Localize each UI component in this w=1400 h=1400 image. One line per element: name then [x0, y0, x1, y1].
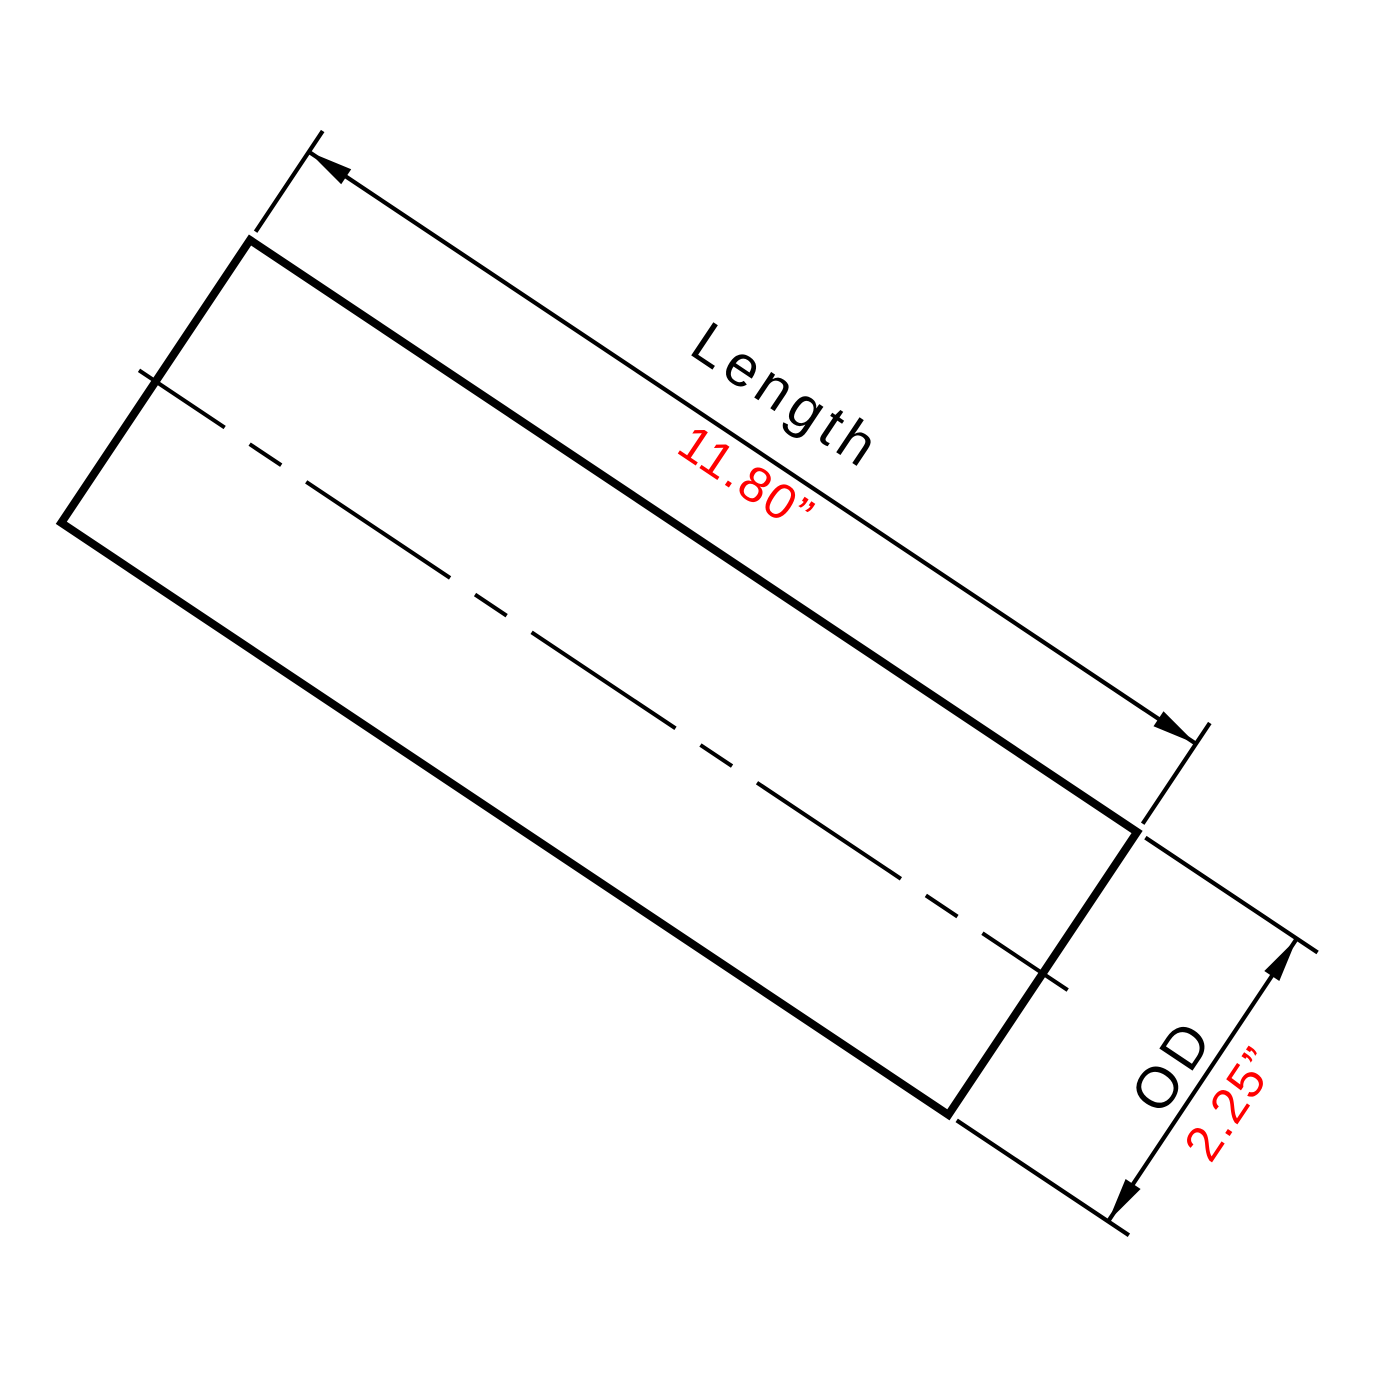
od-extension-line-top	[1145, 838, 1317, 953]
length-arrow-left-icon	[309, 152, 351, 185]
length-dimension: Length 11.80”	[256, 131, 1210, 824]
tube-body	[61, 240, 1137, 1115]
drawing-page: Length 11.80” OD 2.25”	[0, 0, 1400, 1400]
length-arrow-right-icon	[1154, 711, 1196, 744]
od-arrow-bottom-icon	[1108, 1179, 1141, 1221]
od-dimension: OD 2.25”	[957, 838, 1318, 1236]
length-extension-line-left	[256, 131, 323, 232]
od-arrow-top-icon	[1264, 939, 1297, 981]
tube-technical-drawing: Length 11.80” OD 2.25”	[0, 0, 1400, 1400]
length-dimension-line	[309, 152, 1196, 744]
length-extension-line-right	[1143, 723, 1210, 824]
tube-centerline-icon	[139, 370, 1068, 990]
od-extension-line-bottom	[957, 1120, 1129, 1235]
